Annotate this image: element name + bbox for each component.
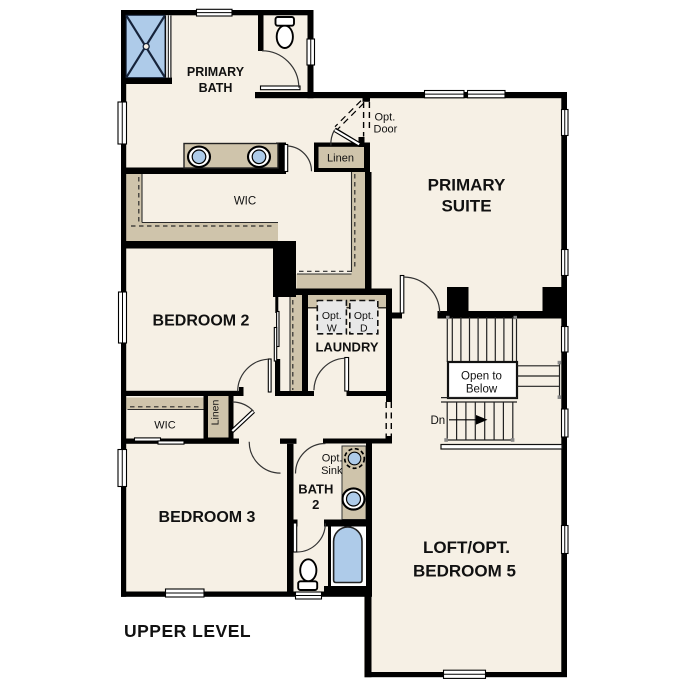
svg-text:W: W (327, 323, 337, 335)
svg-text:BEDROOM 2: BEDROOM 2 (153, 313, 250, 330)
svg-text:WIC: WIC (234, 196, 256, 208)
svg-text:Linen: Linen (210, 400, 222, 426)
svg-text:Opt.: Opt. (322, 310, 342, 322)
svg-text:Sink: Sink (321, 465, 343, 477)
svg-text:BATH: BATH (199, 81, 233, 95)
svg-text:Linen: Linen (327, 153, 354, 165)
svg-text:Opt.: Opt. (375, 112, 396, 124)
svg-text:UPPER LEVEL: UPPER LEVEL (124, 621, 251, 641)
svg-text:LOFT/OPT.: LOFT/OPT. (423, 538, 510, 557)
svg-text:Opt.: Opt. (354, 310, 374, 322)
svg-text:2: 2 (312, 497, 319, 512)
svg-text:D: D (360, 323, 368, 335)
svg-text:Dn: Dn (431, 415, 446, 427)
svg-text:BEDROOM 5: BEDROOM 5 (413, 562, 516, 581)
svg-text:BATH: BATH (298, 482, 333, 497)
svg-text:Open to: Open to (461, 371, 502, 383)
svg-text:WIC: WIC (154, 420, 175, 432)
svg-text:Below: Below (466, 384, 498, 396)
svg-text:Opt.: Opt. (322, 453, 343, 465)
svg-text:PRIMARY: PRIMARY (187, 65, 245, 79)
svg-text:SUITE: SUITE (441, 197, 491, 216)
svg-text:Door: Door (374, 124, 398, 136)
svg-text:PRIMARY: PRIMARY (428, 176, 506, 195)
svg-text:BEDROOM 3: BEDROOM 3 (159, 509, 256, 526)
svg-text:LAUNDRY: LAUNDRY (315, 340, 378, 355)
